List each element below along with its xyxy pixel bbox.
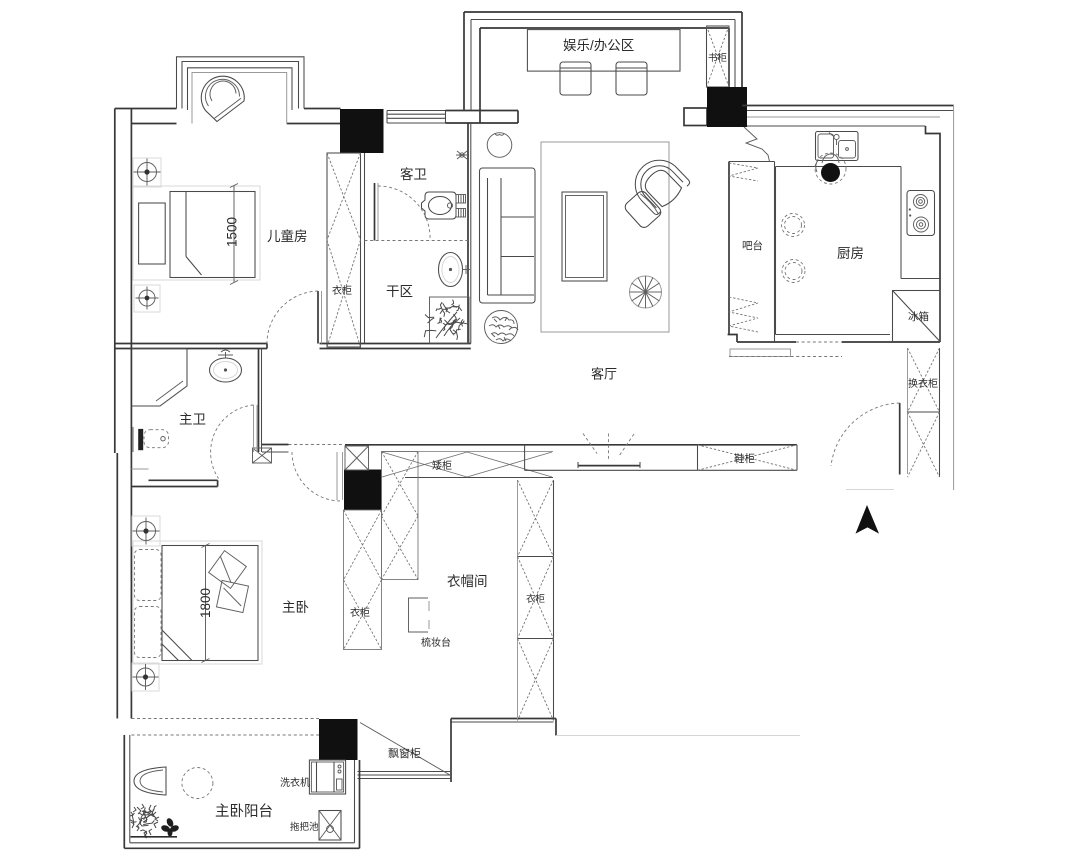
- svg-text:吧台: 吧台: [742, 239, 763, 252]
- svg-text:拖把池: 拖把池: [290, 821, 319, 833]
- svg-text:衣柜: 衣柜: [332, 284, 352, 297]
- svg-text:1800: 1800: [198, 588, 213, 618]
- svg-text:主卫: 主卫: [179, 412, 206, 427]
- svg-text:飘窗柜: 飘窗柜: [388, 746, 421, 760]
- svg-text:厨房: 厨房: [837, 246, 864, 261]
- svg-text:主卧: 主卧: [282, 600, 309, 615]
- svg-text:洗衣机: 洗衣机: [280, 776, 310, 789]
- svg-text:书柜: 书柜: [708, 52, 728, 64]
- svg-text:矮柜: 矮柜: [432, 459, 452, 472]
- svg-text:衣柜: 衣柜: [526, 593, 546, 605]
- svg-text:衣柜: 衣柜: [350, 606, 370, 619]
- svg-text:客厅: 客厅: [591, 367, 617, 382]
- svg-text:娱乐/办公区: 娱乐/办公区: [563, 38, 634, 53]
- svg-text:梳妆台: 梳妆台: [421, 636, 451, 649]
- svg-text:客卫: 客卫: [400, 166, 427, 182]
- svg-text:主卧阳台: 主卧阳台: [215, 803, 273, 820]
- svg-text:衣帽间: 衣帽间: [447, 574, 488, 589]
- svg-text:换衣柜: 换衣柜: [908, 377, 938, 390]
- svg-text:儿童房: 儿童房: [267, 228, 308, 244]
- svg-text:鞋柜: 鞋柜: [734, 452, 755, 465]
- svg-text:1500: 1500: [225, 217, 240, 247]
- svg-text:冰箱: 冰箱: [908, 310, 929, 323]
- svg-text:干区: 干区: [386, 284, 413, 299]
